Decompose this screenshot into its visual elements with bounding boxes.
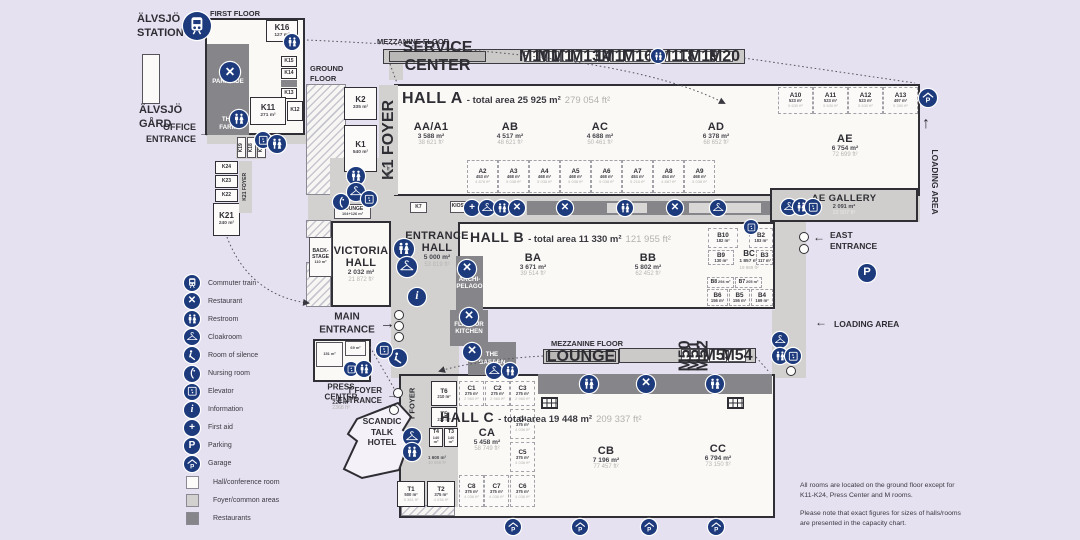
door-7	[786, 366, 796, 376]
door-1	[394, 321, 404, 331]
label-mezzanine-floor: MEZZANINE FLOOR	[377, 38, 449, 47]
room-name: K22	[222, 193, 231, 199]
room-area-ft2: 53 819 ft²	[424, 262, 449, 269]
label-east-entrance: EAST ENTRANCE	[830, 230, 877, 252]
room-c2: C2275 m²2 960 ft²	[485, 381, 510, 406]
room-a12: A12523 m²5 630 ft²	[848, 87, 883, 114]
legend-label: Information	[208, 406, 243, 413]
restaurant-glyph: ✕	[671, 203, 679, 213]
room-b6: B6156 m²	[707, 289, 728, 306]
room-k7: K7	[410, 202, 427, 213]
room-area-ft2: 4 036 ft²	[434, 498, 449, 502]
room-area-ft2: 4 036 ft²	[464, 495, 479, 499]
legend-label: Garage	[208, 460, 231, 467]
elevator-icon	[361, 191, 377, 207]
legend-label: Foyer/common areas	[213, 497, 279, 504]
door-0	[394, 310, 404, 320]
room-area-m2: 6 378 m²	[703, 133, 729, 140]
room-area-ft2: 58 749 ft²	[474, 446, 499, 453]
silence-icon	[184, 347, 200, 363]
legend-label: Parking	[208, 442, 232, 449]
room-name: K19	[239, 143, 245, 152]
restaurant-icon: ✕	[220, 62, 240, 82]
room-area-m2: 6 794 m²	[705, 455, 731, 462]
legend-item-information: iInformation	[184, 401, 280, 419]
room-m54: M54	[728, 349, 746, 362]
room-area-ft2: 5 038 ft²	[599, 180, 614, 184]
restaurant-glyph: ✕	[462, 263, 471, 274]
svg-text:P: P	[647, 526, 651, 533]
room-name: B8	[711, 280, 717, 286]
room-area-m2: 240 m²	[219, 221, 234, 226]
garage-icon: P	[505, 519, 521, 535]
room-cc: CC6 794 m²73 150 ft²	[683, 440, 753, 472]
hall-title-hall-b: HALL B - total area 11 330 m² 121 955 ft…	[470, 229, 671, 245]
room-aa-a1: AA/A13 588 m²38 621 ft²	[396, 116, 466, 152]
room-area-ft2: 5 038 ft²	[506, 180, 521, 184]
room-t3: T3140 m²	[444, 428, 458, 447]
hall-title-hall-a: HALL A - total area 25 925 m² 279 054 ft…	[402, 90, 610, 108]
room-ca: CA5 458 m²58 749 ft²	[452, 424, 522, 456]
room-area-m2: 335 m²	[353, 105, 368, 110]
svg-text:P: P	[714, 526, 718, 533]
room-name: K7	[415, 205, 421, 211]
label-area: →	[380, 315, 395, 332]
restroom-icon	[651, 49, 665, 63]
restaurant-glyph: ✕	[467, 346, 476, 357]
room-area-m2: 294 m²	[718, 280, 730, 284]
legend-label: Elevator	[208, 388, 234, 395]
room-name: ARCHI- PELAGO	[456, 276, 482, 291]
room-a9: A9468 m²5 038 ft²	[684, 160, 715, 193]
firstaid-icon: +	[464, 200, 480, 216]
room-name: CC	[710, 443, 727, 455]
room-m13: M13	[574, 51, 597, 62]
room-k11: K11271 m²	[250, 97, 286, 125]
label-t-foyer-entrance: T FOYER ENTRANCE	[322, 386, 382, 407]
room-k15: K15	[281, 56, 297, 67]
cloakroom-icon	[772, 332, 788, 348]
room-name: VICTORIA HALL	[334, 245, 389, 270]
room-name: AE GALLERY	[812, 194, 877, 205]
room-name: AC	[592, 121, 609, 133]
room-area-ft2: 5 038 ft²	[537, 180, 552, 184]
legend-label: Room of silence	[208, 352, 258, 359]
restroom-icon	[284, 34, 300, 50]
dotted-leader-5	[756, 357, 770, 373]
room-area-ft2: 39 514 ft²	[520, 271, 545, 278]
restaurant-icon: ✕	[463, 343, 481, 361]
room-c7: C7375 m²4 036 ft²	[484, 475, 509, 507]
restaurant-glyph: ✕	[225, 66, 235, 79]
train-icon	[184, 275, 200, 291]
room-name: AE	[837, 133, 853, 145]
room-c8: C8375 m²4 036 ft²	[459, 475, 484, 507]
room-area-ft2: 5 630 ft²	[823, 104, 838, 108]
restroom-icon	[356, 361, 372, 377]
room-b8: B8294 m²	[707, 277, 734, 288]
room-area-m2: 210 m²	[437, 395, 450, 400]
restaurant-icon: ✕	[458, 260, 476, 278]
elevator-icon	[744, 220, 758, 234]
room-gard	[142, 54, 160, 104]
firstaid-icon: +	[184, 420, 200, 436]
note-capacity-chart: Please note that exact figures for sizes…	[800, 509, 964, 529]
note-ground-floor: All rooms are located on the ground floo…	[800, 481, 964, 501]
restroom-icon	[617, 200, 633, 216]
room-area-ft2: 5 630 ft²	[858, 104, 873, 108]
restroom-icon	[394, 239, 414, 259]
svg-text:P: P	[190, 463, 194, 470]
label-t-foyer: T FOYER	[409, 388, 418, 421]
label-2368-ft: 2368 ft²	[332, 406, 350, 412]
svg-text:P: P	[926, 98, 931, 105]
legend-label: Restaurant	[208, 298, 242, 305]
room-m16: M16	[625, 51, 650, 62]
room-c1: C1275 m²2 960 ft²	[459, 381, 484, 406]
hall-area-ft2: 279 054 ft²	[565, 95, 610, 106]
room-area-m2: 7 196 m²	[593, 457, 619, 464]
label-mezzanine-floor: MEZZANINE FLOOR	[551, 340, 623, 349]
cloakroom-icon	[184, 329, 200, 345]
room-k21-foyer: K21 FOYER	[239, 161, 252, 213]
hall-area-ft2: 121 955 ft²	[626, 234, 671, 245]
room-name: ENTRANCE HALL	[405, 230, 469, 255]
room-a4: A4468 m²5 038 ft²	[529, 160, 560, 193]
room-ac: AC4 688 m²50 461 ft²	[565, 116, 635, 152]
room-k14: K14	[281, 68, 297, 79]
room-area-m2: 3 588 m²	[418, 133, 444, 140]
label-area: →	[199, 127, 210, 140]
door-5	[393, 388, 403, 398]
restaurant-icon: ✕	[460, 308, 478, 326]
garage-icon: P	[919, 89, 937, 107]
room-area-m2: 140 m²	[445, 436, 457, 445]
room-area-ft2: 21 872 ft²	[348, 277, 373, 284]
room-name: CB	[598, 445, 615, 457]
parking-glyph: P	[189, 441, 196, 451]
room-area-m2: 69 m²	[350, 346, 360, 350]
elevator-icon	[376, 342, 392, 358]
svg-text:P: P	[511, 526, 515, 533]
room-name: K21 FOYER	[243, 173, 249, 201]
room-area-ft2: 2 960 ft²	[515, 397, 530, 401]
room-area-m2: 169 m²	[755, 299, 768, 304]
svg-text:P: P	[578, 526, 582, 533]
label-main-entrance: MAIN ENTRANCE	[319, 312, 375, 337]
room-name: AD	[708, 121, 725, 133]
room-area-ft2: 19 989 ft²	[739, 265, 758, 270]
legend-swatch-foyer-common-areas: Foyer/common areas	[184, 491, 280, 509]
room-area-m2: 4 688 m²	[587, 133, 613, 140]
legend-label: Nursing room	[208, 370, 250, 377]
parking-icon: P	[858, 264, 876, 282]
restroom-icon	[580, 375, 598, 393]
legend-item-parking: PParking	[184, 437, 280, 455]
info-icon: i	[408, 288, 426, 306]
cloakroom-icon	[486, 363, 502, 379]
room-name: K14	[284, 71, 293, 77]
restroom-icon	[184, 311, 200, 327]
legend-item-cloakroom: Cloakroom	[184, 328, 280, 346]
legend: Commuter train✕RestaurantRestroomCloakro…	[184, 274, 280, 527]
room-area-m2: 205 m²	[746, 280, 758, 284]
restaurant-icon: ✕	[637, 375, 655, 393]
room-area-ft2: 38 621 ft²	[418, 140, 443, 147]
nursing-icon	[333, 194, 349, 210]
room-name: BC	[743, 250, 755, 259]
room-victoria-hall: VICTORIA HALL2 032 m²21 872 ft²	[331, 221, 391, 307]
room-area-m2: 151 m²	[323, 352, 335, 356]
room-area-ft2: 4 036 ft²	[489, 495, 504, 499]
garage-icon: P	[184, 456, 200, 472]
room-b10: B10182 m²	[708, 228, 738, 248]
garage-icon: P	[708, 519, 724, 535]
door-6	[389, 405, 399, 415]
room-area-ft2: 4 876 ft²	[475, 180, 490, 184]
legend-swatch-hall-conference-room: Hall/conference room	[184, 473, 280, 491]
label-ground-floor: GROUND FLOOR	[310, 64, 343, 84]
label-scandic-talk-hotel: SCANDIC TALK HOTEL	[363, 416, 402, 448]
room-ab: AB4 517 m²48 621 ft²	[475, 116, 545, 152]
info-glyph: i	[415, 291, 418, 302]
room-b9: B9130 m²	[708, 250, 734, 265]
floor-plan-map: Commuter train✕RestaurantRestroomCloakro…	[0, 0, 1080, 540]
room-name: M20	[709, 48, 740, 66]
restroom-icon	[403, 443, 421, 461]
garage-icon: P	[572, 519, 588, 535]
elevator-icon	[805, 199, 821, 215]
label-area: ←	[813, 231, 825, 245]
room-name: K2	[355, 96, 365, 105]
room-b4: B4169 m²	[751, 289, 773, 306]
room-area-m2: 540 m²	[353, 150, 368, 155]
room-area-ft2: 4 036 ft²	[515, 461, 530, 465]
room-k23: K23	[215, 175, 238, 188]
cloakroom-icon	[710, 200, 726, 216]
room-name: BB	[640, 252, 657, 264]
legend-swatch-restaurants: Restaurants	[184, 509, 280, 527]
restaurant-icon: ✕	[184, 293, 200, 309]
room-stairs2	[727, 397, 744, 409]
info-glyph: i	[191, 405, 194, 415]
room-area-m2: 140 m²	[430, 436, 442, 445]
room-name: K24	[222, 165, 231, 171]
label-10-069-ft: 10 069 ft²	[428, 461, 446, 466]
room-bb: BB5 802 m²62 452 ft²	[613, 248, 683, 282]
room-name: M16	[622, 48, 653, 66]
room-area-m2: 5 802 m²	[635, 264, 661, 271]
room-area-ft2: 2 960 ft²	[464, 397, 479, 401]
room-area-m2: 5 000 m²	[424, 254, 450, 261]
room-name: K12	[290, 108, 299, 114]
cloakroom-icon	[479, 200, 495, 216]
room-t6: T6210 m²	[431, 381, 457, 406]
label-loading-area: LOADING AREA	[834, 320, 899, 330]
room-area-ft2: 48 621 ft²	[497, 140, 522, 147]
hall-name: HALL B	[470, 229, 524, 245]
room-b7: B7205 m²	[735, 277, 762, 288]
hall-area-m2: - total area 19 448 m²	[498, 414, 592, 425]
room-a10: A10523 m²5 630 ft²	[778, 87, 813, 114]
room-area-m2: 156 m²	[711, 299, 724, 304]
room-area-m2: 110 m²	[314, 260, 326, 264]
door-3	[799, 232, 809, 242]
room-area-m2: 117 m²	[758, 259, 771, 264]
restroom-icon	[230, 110, 248, 128]
restaurant-glyph: ✕	[464, 311, 473, 322]
room-area-ft2: 22 507 ft²	[833, 210, 856, 216]
hall-name: HALL C	[440, 409, 494, 425]
restaurant-icon: ✕	[557, 200, 573, 216]
door-4	[799, 244, 809, 254]
hall-name: HALL A	[402, 90, 463, 108]
legend-label: Hall/conference room	[213, 479, 280, 486]
legend-label: First aid	[208, 424, 233, 431]
room-m20: M20	[716, 51, 733, 62]
room-a5: A5468 m²5 038 ft²	[560, 160, 591, 193]
label-area: ←	[815, 316, 827, 330]
room-k1: K1540 m²	[344, 125, 377, 172]
map-notes: All rooms are located on the ground floo…	[800, 481, 964, 536]
rest-swatch	[186, 512, 199, 525]
room-a7: A7484 m²5 210 ft²	[622, 160, 653, 193]
room-name: B7	[739, 280, 745, 286]
room-area-m2: 156 m²	[733, 299, 746, 304]
hall-swatch	[186, 476, 199, 489]
room-area-m2: 104+126 m²	[342, 212, 363, 216]
hall-area-ft2: 209 337 ft²	[596, 414, 641, 425]
room-b3: B3117 m²	[756, 250, 773, 265]
room-area-ft2: 5 210 ft²	[630, 180, 645, 184]
room-a13: A13497 m²5 350 ft²	[883, 87, 918, 114]
room-area-m2: 130 m²	[714, 259, 727, 264]
room-area-m2: 3 671 m²	[520, 264, 546, 271]
room-area-ft2: 5 350 ft²	[893, 104, 908, 108]
hall-title-hall-c: HALL C - total area 19 448 m² 209 337 ft…	[440, 409, 642, 425]
room-name: AB	[502, 121, 519, 133]
garage-icon: P	[641, 519, 657, 535]
room-k12: K12	[287, 101, 303, 121]
room-area-m2: 182 m²	[716, 239, 729, 244]
dotted-leader-3	[744, 58, 915, 83]
room-name: K1	[355, 141, 365, 150]
room-a11: A11523 m²5 630 ft²	[813, 87, 848, 114]
cloakroom-icon	[397, 257, 417, 277]
restaurant-icon: ✕	[509, 200, 525, 216]
elevator-icon	[785, 348, 801, 364]
room-name: K15	[284, 59, 293, 65]
room-a2: A2453 m²4 876 ft²	[467, 160, 498, 193]
restaurant-glyph: ✕	[561, 203, 569, 213]
room-name: AA/A1	[414, 121, 449, 133]
restaurant-glyph: ✕	[188, 296, 196, 306]
legend-item-nursing-room: Nursing room	[184, 364, 280, 382]
room-a8: A8454 m²4 887 ft²	[653, 160, 684, 193]
restroom-icon	[494, 200, 510, 216]
room-t4: T4140 m²	[429, 428, 443, 447]
restaurant-glyph: ✕	[641, 378, 650, 389]
label-loading-area: LOADING AREA	[929, 149, 939, 214]
room-area-m2: 183 m²	[754, 239, 767, 244]
elevator-icon	[184, 384, 200, 400]
room-t1: T1500 m²5 381 ft²	[397, 481, 425, 507]
parking-glyph: P	[863, 267, 871, 278]
info-icon: i	[184, 402, 200, 418]
room-area-ft2: 73 150 ft²	[705, 462, 730, 469]
room-area-ft2: 5 630 ft²	[788, 104, 803, 108]
room-b5: B5156 m²	[729, 289, 750, 306]
room-k24: K24	[215, 161, 238, 174]
legend-item-garage: PGarage	[184, 455, 280, 473]
foyer-swatch	[186, 494, 199, 507]
room-area-ft2: 77 457 ft²	[593, 464, 618, 471]
room-name: M54	[721, 347, 752, 365]
room-area-ft2: 50 461 ft²	[587, 140, 612, 147]
room-name: K11	[261, 104, 275, 113]
room-name: K21	[219, 212, 234, 221]
room-a3: A3468 m²5 038 ft²	[498, 160, 529, 193]
room-area-ft2: 2 960 ft²	[490, 397, 505, 401]
room-name: K23	[222, 179, 231, 185]
zone-h-9	[306, 220, 331, 238]
room-cb: CB7 196 m²77 457 ft²	[571, 442, 641, 474]
room-t2: T2375 m²4 036 ft²	[427, 481, 455, 507]
room-area: 151 m²	[316, 342, 343, 367]
room-area-ft2: 4 887 ft²	[661, 180, 676, 184]
legend-item-restroom: Restroom	[184, 310, 280, 328]
room-area-ft2: 72 699 ft²	[832, 152, 857, 159]
room-area-m2: 6 754 m²	[832, 145, 858, 152]
room-k2: K2335 m²	[344, 87, 377, 120]
room-name: CA	[479, 427, 496, 439]
door-2	[394, 332, 404, 342]
label-office-entrance: OFFICE ENTRANCE	[136, 122, 196, 145]
room-back-stage: BACK- STAGE110 m²	[309, 237, 332, 277]
room-ad: AD6 378 m²68 652 ft²	[681, 116, 751, 152]
room-kdark	[281, 80, 297, 87]
legend-item-commuter-train: Commuter train	[184, 274, 280, 292]
room-area-m2: 4 517 m²	[497, 133, 523, 140]
label-area: ↑	[922, 115, 930, 133]
legend-item-restaurant: ✕Restaurant	[184, 292, 280, 310]
room-ae: AE6 754 m²72 699 ft²	[810, 128, 880, 164]
room-area-m2: 271 m²	[260, 113, 275, 118]
room-name: K16	[275, 24, 290, 33]
legend-label: Restaurants	[213, 515, 251, 522]
legend-label: Restroom	[208, 316, 238, 323]
legend-label: Cloakroom	[208, 334, 242, 341]
room-name: K18	[249, 143, 255, 152]
firstaid-glyph: +	[469, 203, 475, 213]
label-lvsj-station: ÄLVSJÖ STATION	[137, 13, 184, 41]
room-area-ft2: 5 381 ft²	[404, 498, 419, 502]
restaurant-glyph: ✕	[513, 203, 521, 213]
room-darkstrip	[538, 374, 772, 394]
legend-label: Commuter train	[208, 280, 256, 287]
room-service-center: SERVICE CENTER	[389, 51, 486, 62]
room-k21: K21240 m²	[213, 203, 240, 236]
room-k22: K22	[215, 189, 238, 202]
room-name: BA	[525, 252, 542, 264]
room-a6: A6468 m²5 038 ft²	[591, 160, 622, 193]
room-area-ft2: 5 038 ft²	[692, 180, 707, 184]
room-stairs1	[541, 397, 558, 409]
legend-item-elevator: Elevator	[184, 383, 280, 401]
room-area-ft2: 5 038 ft²	[568, 180, 583, 184]
hall-area-m2: - total area 11 330 m²	[528, 234, 621, 245]
room-c3: C3275 m²2 960 ft²	[510, 381, 535, 406]
